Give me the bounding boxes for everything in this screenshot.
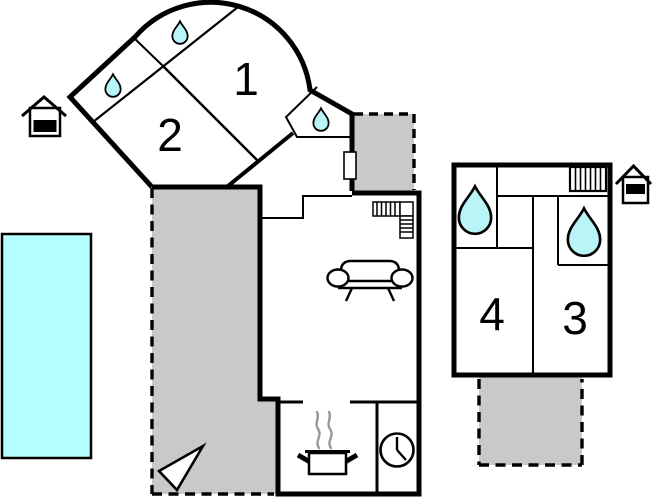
upper-terrace <box>354 114 414 191</box>
floorplan-svg: 1 2 <box>0 0 659 500</box>
sofa-icon <box>328 261 413 301</box>
floorplan-canvas: 1 2 <box>0 0 659 500</box>
steam-icon <box>317 412 320 448</box>
stairs-icon <box>373 202 413 238</box>
pool <box>2 234 91 458</box>
cooking-pot-icon <box>298 412 357 474</box>
outbuilding-icon-right <box>616 166 651 203</box>
clock-icon <box>381 434 414 467</box>
living-room-north-walls <box>260 196 352 218</box>
radiator-icon <box>570 167 606 191</box>
room-1-label: 1 <box>233 53 259 105</box>
room-4-label: 4 <box>479 288 505 340</box>
steam-icon <box>329 412 332 448</box>
outbuilding-icon-left <box>22 97 66 136</box>
annex-terrace-area <box>479 377 582 465</box>
annex-terrace <box>479 377 582 465</box>
entry-door <box>344 152 356 179</box>
upper-terrace-area <box>354 114 414 191</box>
room-2-label: 2 <box>157 109 183 161</box>
room-3-label: 3 <box>562 292 588 344</box>
